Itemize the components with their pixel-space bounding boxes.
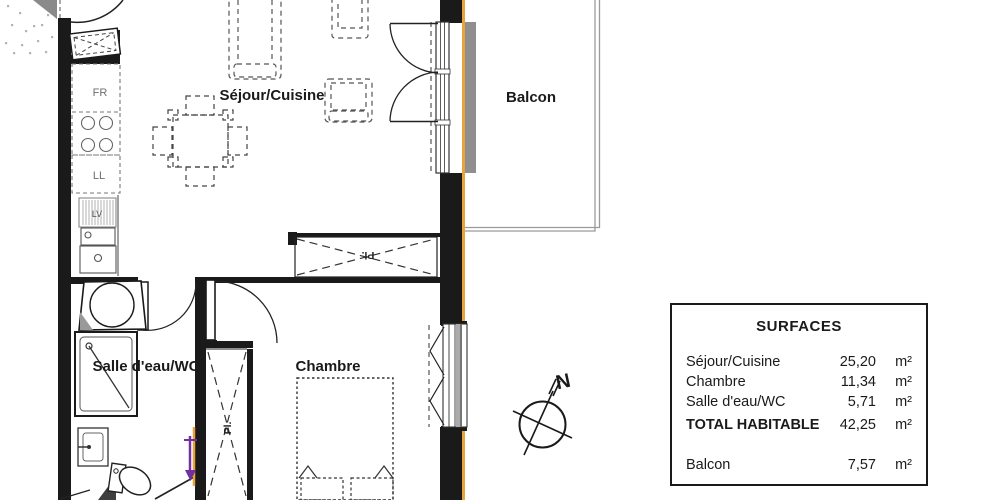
- common-area-hatch: [5, 0, 60, 54]
- surface-unit: m²: [876, 372, 912, 392]
- surface-value: 7,57: [824, 455, 876, 475]
- walls: [58, 0, 467, 500]
- compass-north-label: N: [554, 370, 573, 395]
- balcony-french-door: [390, 22, 450, 173]
- dishwasher-label: LV: [92, 209, 102, 219]
- surface-total-unit: m²: [876, 415, 912, 435]
- surface-row-salle-eau: Salle d'eau/WC 5,71 m²: [686, 392, 912, 412]
- surfaces-title: SURFACES: [686, 317, 912, 337]
- surface-row-balcon: Balcon 7,57 m²: [686, 455, 912, 475]
- surface-value: 11,34: [824, 372, 876, 392]
- sofa: [229, 0, 281, 79]
- balcony-window-sill: [465, 22, 476, 173]
- surface-label: Séjour/Cuisine: [686, 352, 824, 372]
- closet-top: Pl.: [295, 237, 437, 277]
- surface-value: 5,71: [824, 392, 876, 412]
- armchair: [332, 0, 368, 38]
- burner-icon: [100, 117, 113, 130]
- chambre-door: [206, 280, 277, 343]
- closet-side: Pl.: [206, 349, 247, 496]
- kitchen-sink: [80, 228, 116, 273]
- surface-row-chambre: Chambre 11,34 m²: [686, 372, 912, 392]
- room-label-sejour: Séjour/Cuisine: [219, 87, 324, 104]
- surface-unit: m²: [876, 352, 912, 372]
- surface-label: Balcon: [686, 455, 824, 475]
- room-label-chambre: Chambre: [295, 358, 360, 375]
- bathroom-door: [138, 282, 196, 330]
- dining-table: [153, 96, 247, 186]
- entrance-door-arc: [71, 0, 123, 22]
- armchair: [325, 79, 372, 122]
- room-label-balcon: Balcon: [506, 89, 556, 106]
- compass: N: [513, 370, 573, 455]
- technical-annotation: [184, 427, 197, 486]
- bathroom-cabinet: [78, 428, 108, 466]
- burner-icon: [82, 139, 95, 152]
- surfaces-table: SURFACES Séjour/Cuisine 25,20 m² Chambre…: [670, 303, 928, 486]
- surface-row-total: TOTAL HABITABLE 42,25 m²: [686, 415, 912, 435]
- surface-label: Salle d'eau/WC: [686, 392, 824, 412]
- surface-unit: m²: [876, 392, 912, 412]
- surface-row-sejour: Séjour/Cuisine 25,20 m²: [686, 352, 912, 372]
- closet-side-label: Pl.: [222, 422, 234, 435]
- surface-unit: m²: [876, 455, 912, 475]
- burner-icon: [82, 117, 95, 130]
- surface-total-value: 42,25: [824, 415, 876, 435]
- balcony-outline: [465, 0, 600, 231]
- surface-total-label: TOTAL HABITABLE: [686, 415, 824, 435]
- washer-label: LL: [93, 170, 105, 182]
- toilet: [98, 461, 156, 500]
- bed: [297, 378, 393, 500]
- washbasin: [79, 281, 146, 330]
- surface-label: Chambre: [686, 372, 824, 392]
- burner-icon: [100, 139, 113, 152]
- chambre-window: [429, 324, 467, 427]
- room-label-salle-eau: Salle d'eau/WC: [93, 358, 200, 375]
- closet-top-label: Pl.: [362, 249, 375, 261]
- fridge-label: FR: [93, 87, 108, 99]
- surface-value: 25,20: [824, 352, 876, 372]
- entrance-closet: [70, 28, 121, 60]
